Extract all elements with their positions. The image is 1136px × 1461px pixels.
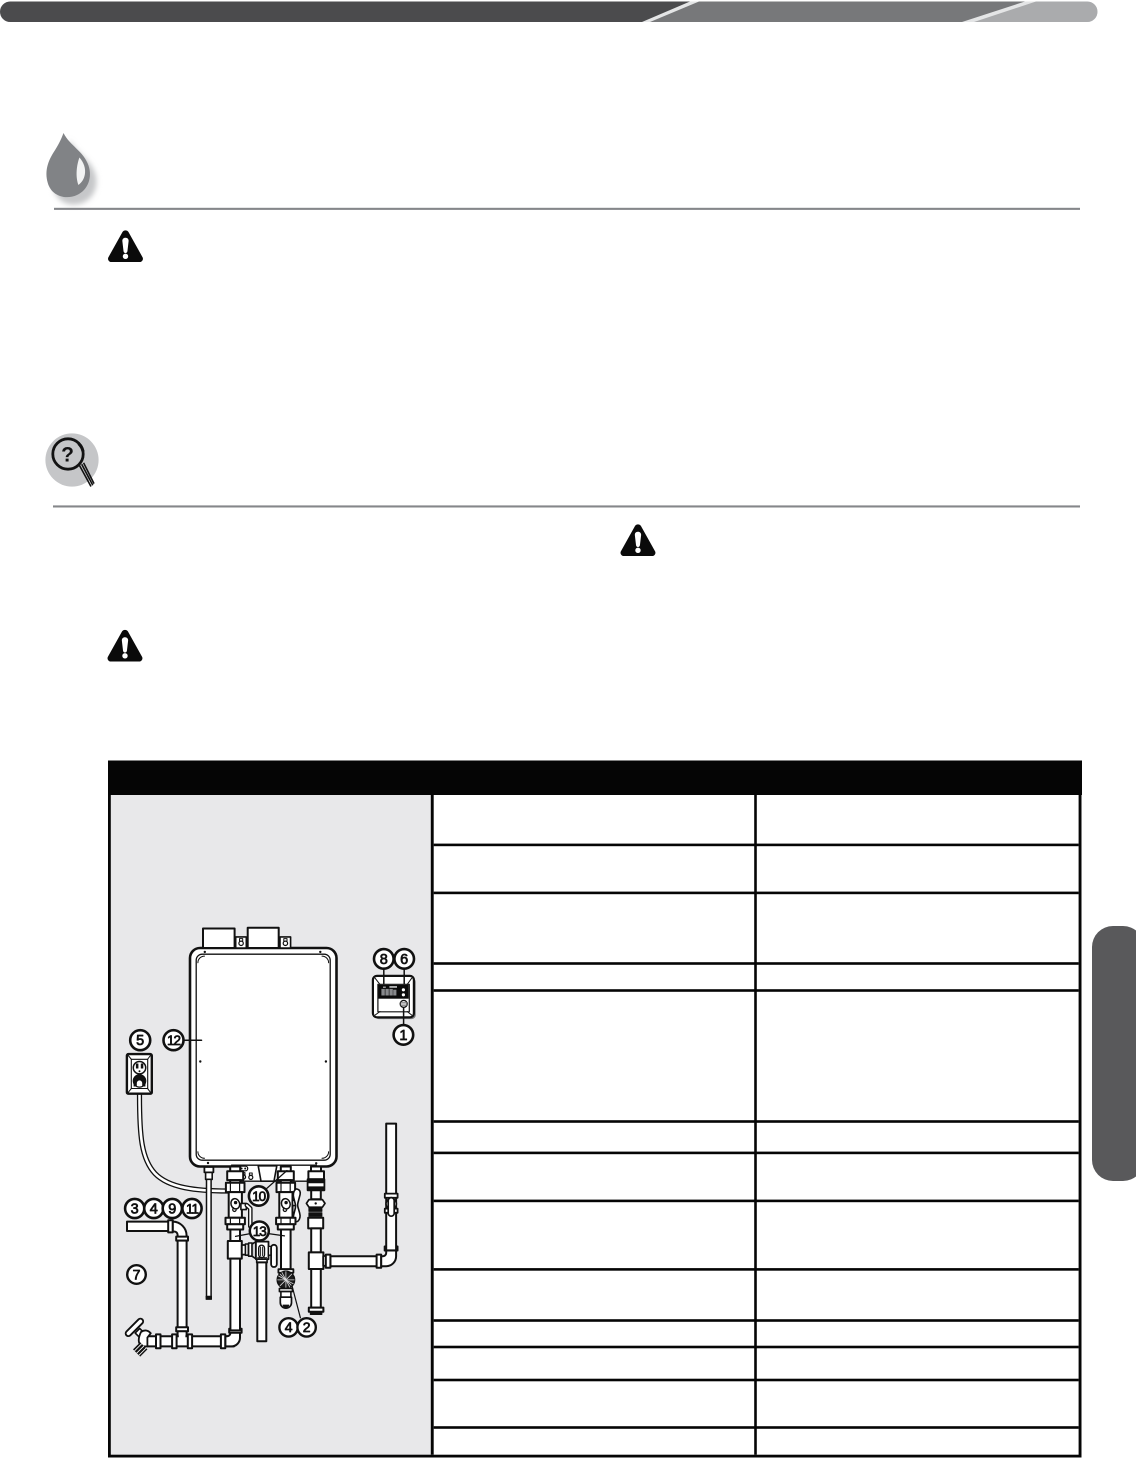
svg-text:4: 4: [150, 1202, 158, 1218]
svg-text:2: 2: [303, 1319, 311, 1335]
svg-text:6: 6: [400, 952, 408, 968]
svg-text:10: 10: [252, 1189, 266, 1204]
svg-text:7: 7: [133, 1266, 141, 1282]
svg-text:4: 4: [285, 1319, 293, 1335]
svg-text:9: 9: [168, 1202, 176, 1218]
svg-text:11: 11: [186, 1201, 199, 1216]
svg-text:5: 5: [136, 1033, 144, 1049]
svg-text:1: 1: [399, 1028, 407, 1044]
svg-text:3: 3: [131, 1202, 139, 1218]
svg-text:12: 12: [167, 1033, 181, 1048]
svg-text:8: 8: [380, 952, 388, 968]
svg-text:?: ?: [61, 444, 74, 467]
svg-text:13: 13: [253, 1224, 267, 1239]
